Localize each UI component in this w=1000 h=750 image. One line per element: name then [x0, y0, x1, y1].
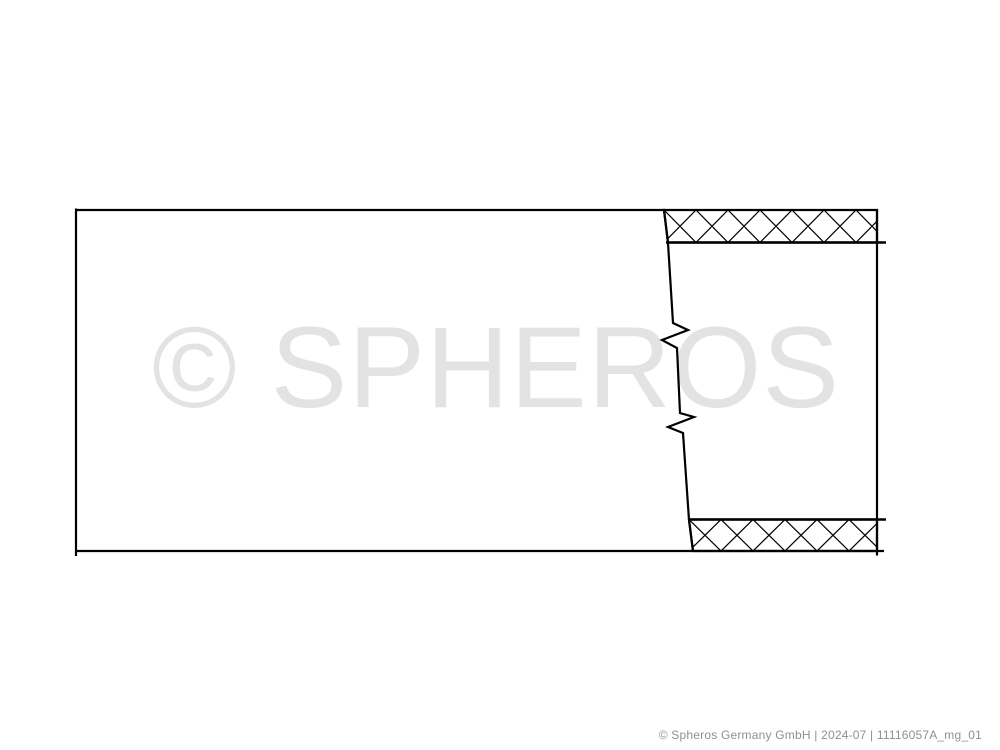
lower-wall-hatch-band	[689, 520, 877, 552]
watermark-text: © SPHEROS	[152, 304, 840, 432]
upper-wall-hatch-band	[664, 210, 877, 243]
footer-credit-text: © Spheros Germany GmbH | 2024-07 | 11116…	[659, 728, 982, 742]
drawing-page: © SPHEROS © Spheros Germany GmbH | 2024-…	[0, 0, 1000, 750]
technical-drawing-canvas: © SPHEROS © Spheros Germany GmbH | 2024-…	[0, 0, 1000, 750]
